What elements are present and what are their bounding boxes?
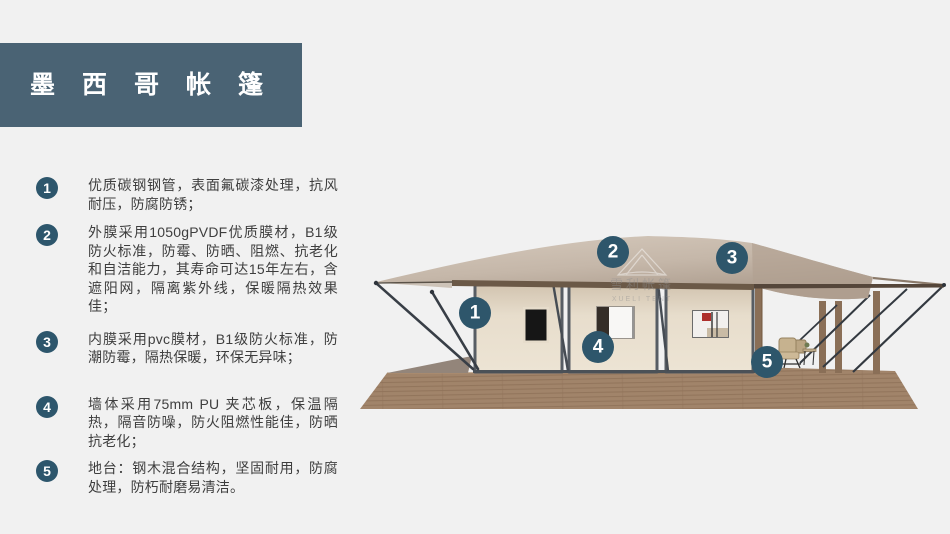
plant	[805, 343, 810, 348]
svg-text:4: 4	[593, 337, 604, 358]
callout-badge-1: 1	[459, 297, 491, 329]
feature-item-3: 3 内膜采用pvc膜材，B1级防火标准，防潮防霉，隔热保暖，环保无异味；	[36, 330, 348, 367]
callout-badge-3: 3	[716, 242, 748, 274]
left-guy-braces	[374, 281, 478, 369]
svg-text:2: 2	[608, 242, 619, 263]
deck-side-shadow	[387, 356, 472, 373]
watermark-en: XUELI TENT	[612, 296, 672, 303]
feature-number-badge: 3	[36, 331, 58, 353]
dark-window	[523, 307, 549, 343]
feature-text: 外膜采用1050gPVDF优质膜材，B1级防火标准，防霉、防晒、阻燃、抗老化和自…	[88, 223, 338, 316]
tent-figure: 雪利帐篷 XUELI TENT 1 2 3 4 5	[355, 225, 950, 420]
veranda-beam	[754, 284, 944, 289]
svg-text:5: 5	[762, 352, 773, 373]
feature-item-4: 4 墙体采用75mm PU 夹芯板，保温隔热，隔音防噪，防火阻燃性能佳，防晒抗老…	[36, 395, 348, 451]
feature-text: 地台：钢木混合结构，坚固耐用，防腐处理，防朽耐磨易清洁。	[88, 459, 338, 496]
watermark-cn: 雪利帐篷	[610, 277, 674, 292]
title-bar: 墨西哥帐篷	[0, 43, 302, 127]
feature-number-badge: 1	[36, 177, 58, 199]
feature-text: 优质碳钢钢管，表面氟碳漆处理，抗风耐压，防腐防锈；	[88, 176, 338, 213]
svg-text:1: 1	[470, 303, 481, 324]
feature-item-5: 5 地台：钢木混合结构，坚固耐用，防腐处理，防朽耐磨易清洁。	[36, 459, 348, 496]
feature-number-badge: 4	[36, 396, 58, 418]
feature-number-badge: 2	[36, 224, 58, 246]
page-title: 墨西哥帐篷	[30, 73, 290, 98]
feature-item-1: 1 优质碳钢钢管，表面氟碳漆处理，抗风耐压，防腐防锈；	[36, 176, 348, 213]
feature-text: 墙体采用75mm PU 夹芯板，保温隔热，隔音防噪，防火阻燃性能佳，防晒抗老化；	[88, 395, 338, 451]
feature-item-2: 2 外膜采用1050gPVDF优质膜材，B1级防火标准，防霉、防晒、阻燃、抗老化…	[36, 223, 348, 316]
callout-badge-5: 5	[751, 346, 783, 378]
svg-text:3: 3	[727, 248, 738, 269]
feature-text: 内膜采用pvc膜材，B1级防火标准，防潮防霉，隔热保暖，环保无异味；	[88, 330, 338, 367]
canopy-edge-cable	[873, 278, 944, 285]
tent-illustration: 雪利帐篷 XUELI TENT 1 2 3 4 5	[355, 225, 950, 420]
callout-badge-4: 4	[582, 331, 614, 363]
feature-number-badge: 5	[36, 460, 58, 482]
feature-list: 1 优质碳钢钢管，表面氟碳漆处理，抗风耐压，防腐防锈； 2 外膜采用1050gP…	[36, 176, 348, 496]
pass-through-window	[693, 311, 729, 338]
callout-badge-2: 2	[597, 236, 629, 268]
red-sign	[702, 313, 711, 321]
